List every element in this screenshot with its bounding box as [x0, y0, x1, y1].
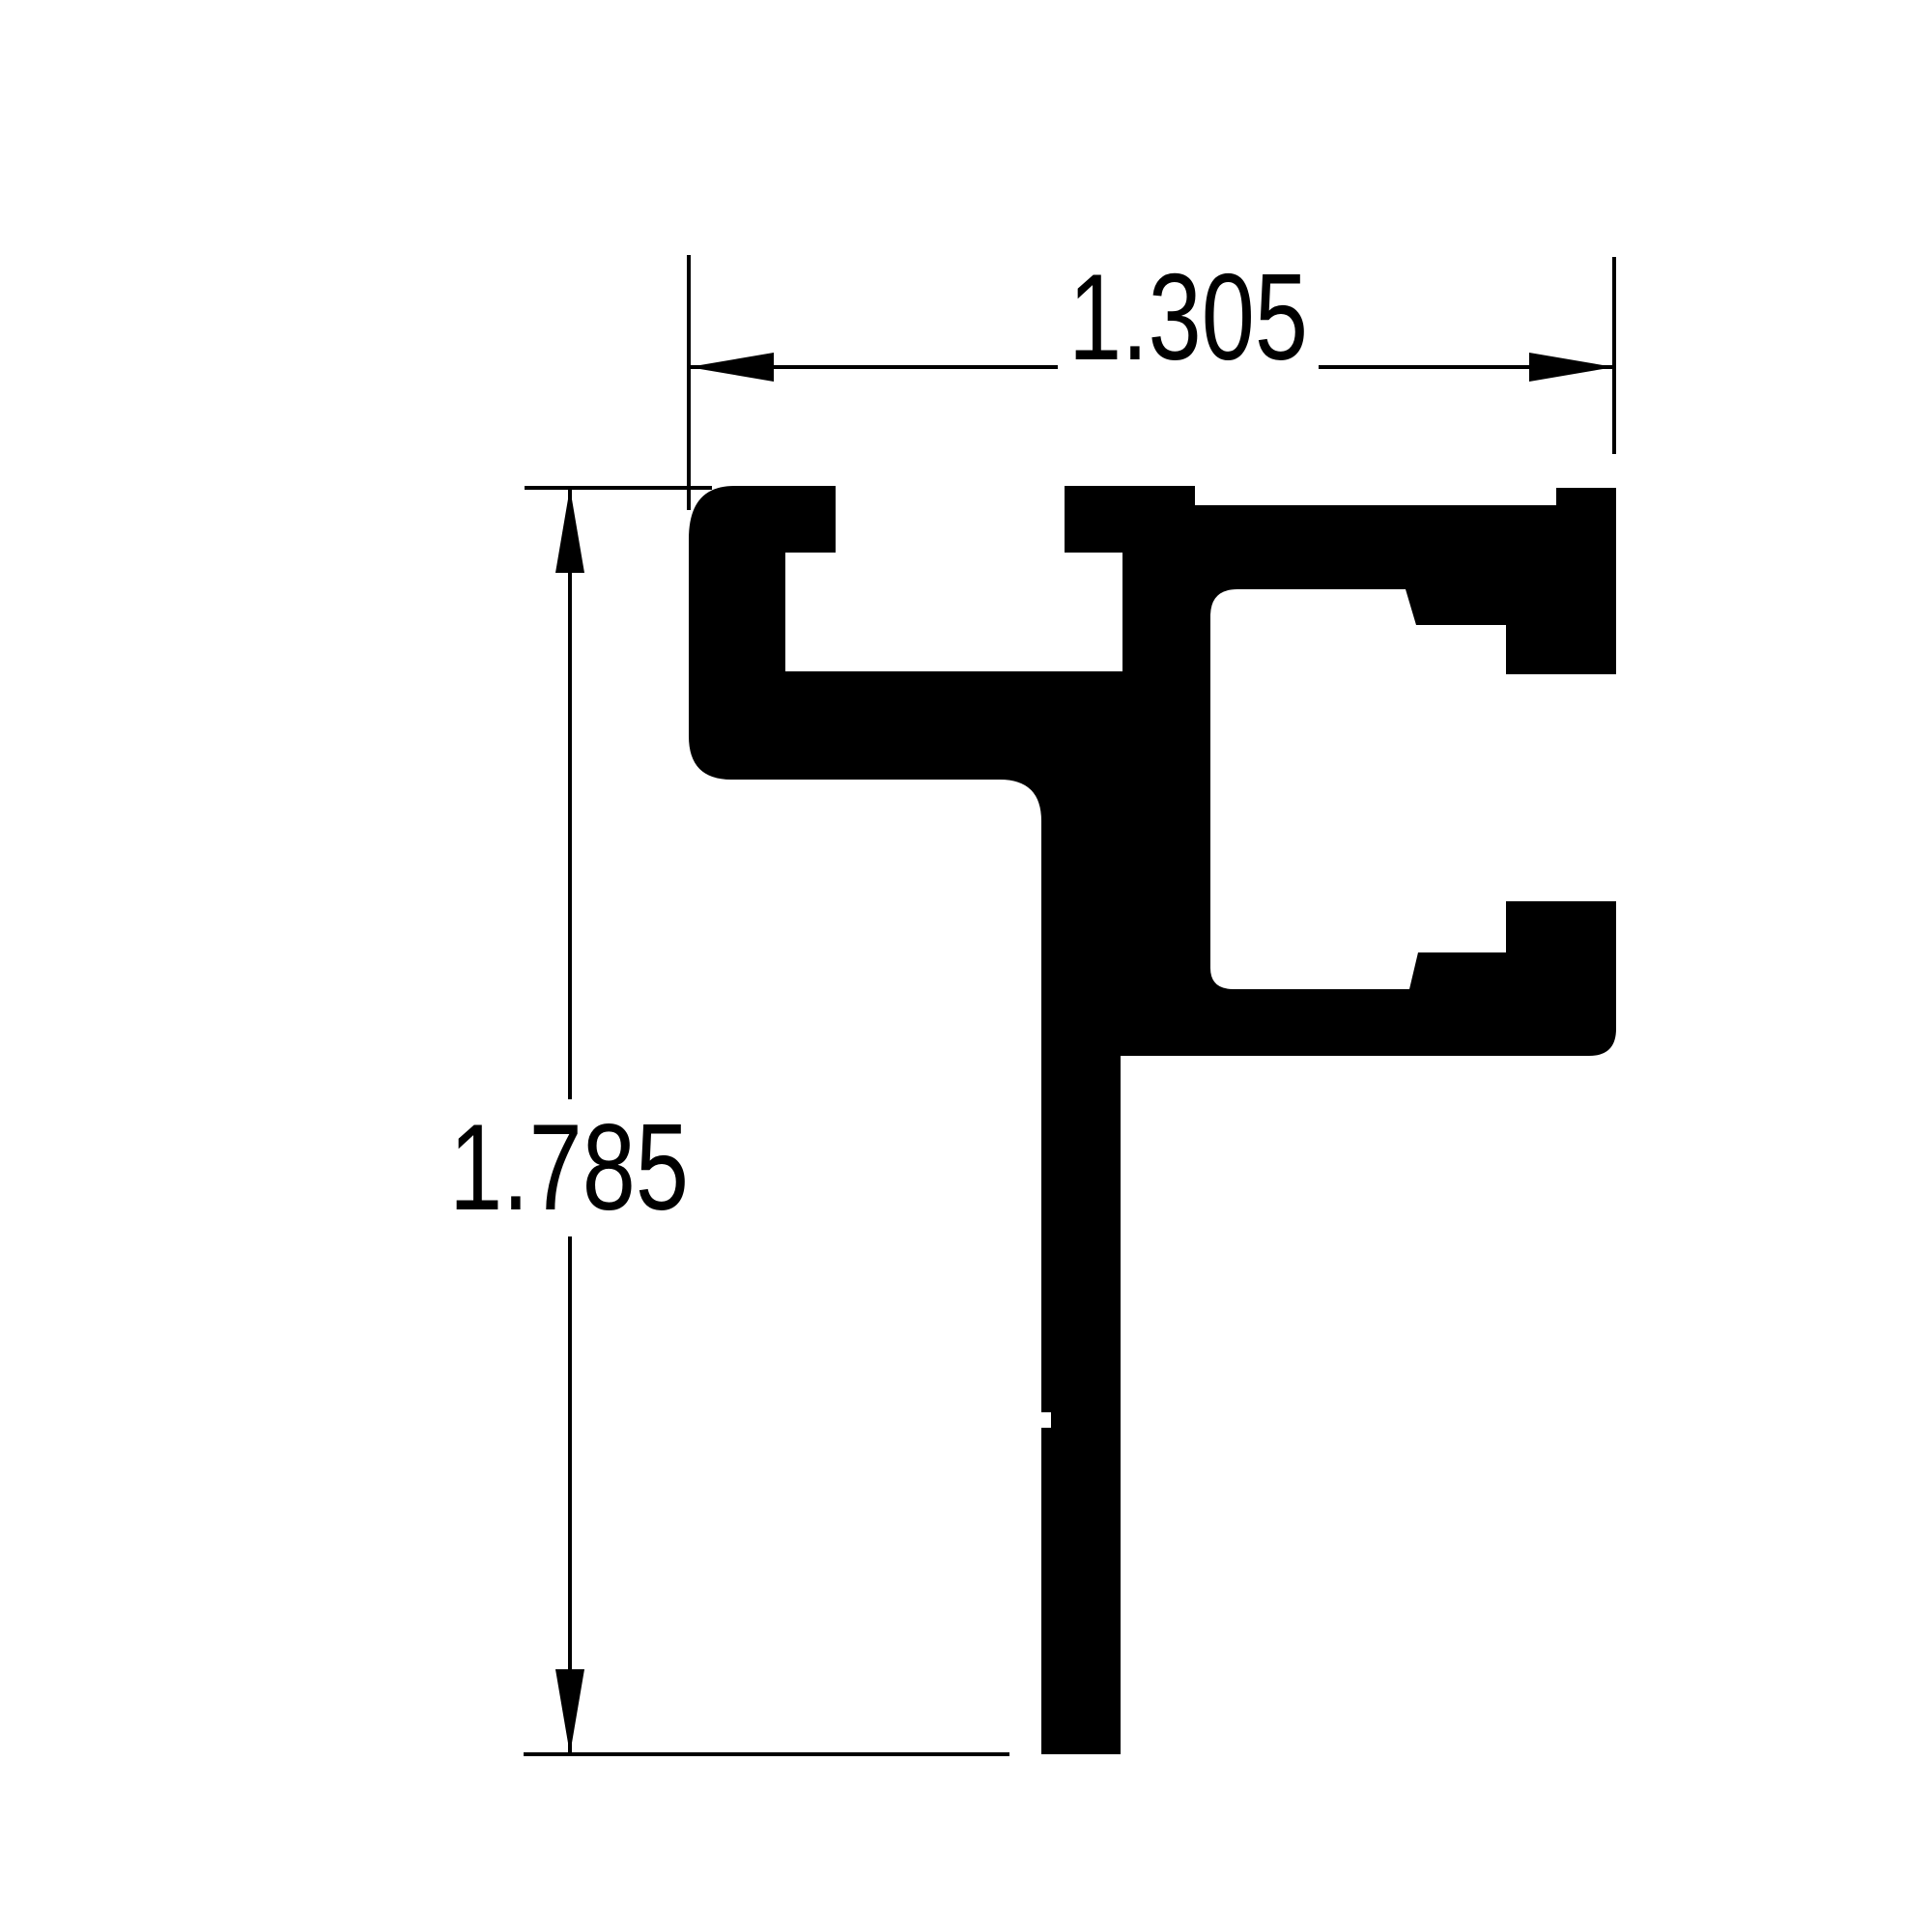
leg-edge-nick [1039, 1412, 1051, 1428]
drawing-sheet: 1.305 1.785 [0, 0, 1932, 1932]
horizontal-dimension: 1.305 [689, 249, 1614, 510]
arrowhead-down-icon [555, 1669, 584, 1754]
arrowhead-right-icon [1529, 353, 1614, 382]
technical-drawing-canvas: 1.305 1.785 [0, 0, 1932, 1932]
width-dimension-label: 1.305 [1068, 249, 1308, 386]
arrowhead-up-icon [555, 488, 584, 573]
profile-silhouette [689, 486, 1616, 1754]
height-dimension-label: 1.785 [449, 1099, 689, 1236]
arrowhead-left-icon [689, 353, 774, 382]
